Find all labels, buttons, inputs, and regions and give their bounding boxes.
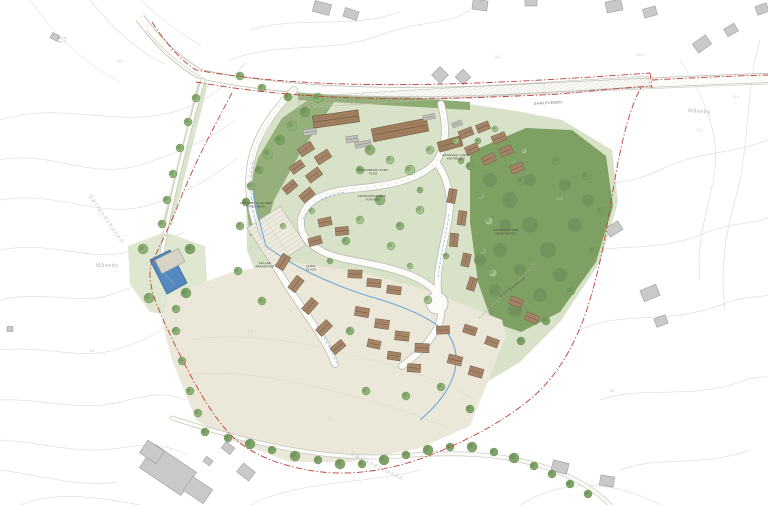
- tree-icon: [492, 126, 498, 132]
- annotation-label: LEIKE-PLASS: [306, 264, 316, 271]
- tree-icon: [446, 443, 454, 451]
- site-plan-page: MåsebyMåsebySørlandsbanenSørlandsbanenGA…: [0, 0, 768, 505]
- house: [415, 343, 429, 352]
- tree-icon: [475, 138, 481, 144]
- tree-icon: [186, 387, 194, 395]
- house: [407, 364, 421, 373]
- forest-canopy-blob: [502, 192, 518, 208]
- house: [348, 270, 362, 278]
- elevation-label: 11.7: [697, 128, 703, 132]
- tree-icon: [176, 144, 184, 152]
- house: [395, 331, 410, 341]
- tree-icon: [510, 158, 516, 164]
- tree-icon: [466, 162, 474, 170]
- existing-building: [525, 0, 537, 6]
- annotation-label: gnr. 57bnr. 1: [57, 36, 67, 43]
- forest-canopy-blob: [524, 174, 536, 186]
- tree-icon: [169, 170, 177, 178]
- tree-icon: [437, 383, 445, 391]
- tree-icon: [201, 428, 209, 436]
- tree-icon: [517, 177, 525, 185]
- house: [457, 211, 467, 226]
- tree-icon: [290, 451, 300, 461]
- forest-canopy-blob: [493, 243, 507, 257]
- house: [387, 351, 401, 361]
- tree-icon: [426, 146, 434, 154]
- elevation-label: 4.5: [118, 59, 123, 63]
- tree-icon: [184, 118, 192, 126]
- tree-icon: [163, 196, 171, 204]
- forest-canopy-blob: [582, 194, 594, 206]
- elevation-label: 10.2: [557, 197, 563, 201]
- tree-icon: [489, 269, 497, 277]
- tree-icon: [158, 220, 166, 228]
- tree-icon: [346, 327, 354, 335]
- tree-icon: [379, 455, 389, 465]
- tree-icon: [405, 165, 415, 175]
- tree-icon: [365, 145, 375, 155]
- tree-icon: [247, 182, 255, 190]
- tree-icon: [477, 192, 485, 200]
- tree-icon: [424, 296, 432, 304]
- tree-icon: [416, 206, 424, 214]
- house: [449, 233, 458, 247]
- forest-canopy-blob: [533, 288, 547, 302]
- tree-icon: [417, 187, 423, 193]
- tree-icon: [144, 293, 154, 303]
- forest-canopy-blob: [522, 217, 538, 233]
- tree-icon: [542, 317, 550, 325]
- house: [374, 319, 389, 330]
- tree-icon: [584, 490, 592, 498]
- tree-icon: [245, 439, 255, 449]
- tree-icon: [402, 451, 410, 459]
- tree-icon: [443, 253, 449, 259]
- elevation-label: 10.9: [637, 53, 643, 57]
- place-label: Måseby: [96, 262, 119, 269]
- existing-building: [7, 327, 13, 332]
- existing-building: [472, 0, 488, 11]
- tree-icon: [567, 287, 575, 295]
- tree-icon: [185, 244, 195, 254]
- forest-canopy-blob: [474, 254, 486, 266]
- tree-icon: [552, 157, 560, 165]
- tree-icon: [236, 222, 244, 230]
- forest-canopy-blob: [553, 268, 567, 282]
- tree-icon: [548, 470, 556, 478]
- house: [367, 278, 382, 287]
- tree-icon: [327, 258, 333, 264]
- elevation-label: 7.2: [328, 417, 333, 421]
- tree-icon: [192, 94, 200, 102]
- tree-icon: [172, 327, 180, 335]
- tree-icon: [402, 392, 410, 400]
- site-plan-map: MåsebyMåsebySørlandsbanenSørlandsbanenGA…: [0, 0, 768, 505]
- tree-icon: [275, 135, 285, 145]
- tree-icon: [485, 217, 493, 225]
- existing-building: [599, 475, 615, 487]
- tree-icon: [530, 462, 538, 470]
- elevation-label: 9.8: [610, 389, 615, 393]
- tree-icon: [517, 337, 525, 345]
- tree-icon: [490, 448, 498, 456]
- tree-icon: [582, 172, 590, 180]
- tree-icon: [234, 267, 242, 275]
- tree-icon: [407, 263, 413, 269]
- tree-icon: [386, 156, 394, 164]
- elevation-label: 11.2: [495, 55, 501, 59]
- tree-icon: [280, 223, 286, 229]
- tree-icon: [566, 480, 574, 488]
- tree-icon: [335, 459, 345, 469]
- tree-icon: [138, 244, 148, 254]
- forest-canopy-blob: [568, 218, 582, 232]
- tree-icon: [181, 288, 191, 298]
- tree-icon: [194, 409, 202, 417]
- tree-icon: [521, 148, 527, 154]
- tree-icon: [362, 387, 370, 395]
- tree-icon: [356, 216, 364, 224]
- forest-canopy-blob: [483, 173, 497, 187]
- tree-icon: [467, 442, 477, 452]
- house: [387, 285, 402, 295]
- tree-icon: [387, 242, 395, 250]
- tree-icon: [453, 138, 459, 144]
- house: [436, 326, 449, 334]
- tree-icon: [509, 453, 519, 463]
- tree-icon: [314, 456, 322, 464]
- tree-icon: [263, 149, 273, 159]
- tree-icon: [597, 207, 605, 215]
- tree-icon: [396, 222, 404, 230]
- tree-icon: [342, 237, 350, 245]
- tree-icon: [268, 446, 276, 454]
- tree-icon: [309, 208, 315, 214]
- tree-icon: [589, 247, 597, 255]
- tree-icon: [172, 305, 180, 313]
- house: [335, 226, 349, 235]
- tree-icon: [313, 93, 323, 103]
- tree-icon: [479, 247, 487, 255]
- forest-canopy-blob: [540, 242, 556, 258]
- tree-icon: [258, 297, 266, 305]
- elevation-label: 11.4: [733, 95, 739, 99]
- tree-icon: [287, 121, 297, 131]
- annotation-label: EKSISTERANDEVEGETASJON: [494, 228, 519, 235]
- forest-canopy-blob: [559, 179, 571, 191]
- forest-canopy-blob: [514, 264, 526, 276]
- tree-icon: [423, 445, 433, 455]
- tree-icon: [300, 107, 310, 117]
- tree-icon: [466, 405, 474, 413]
- tree-icon: [255, 166, 263, 174]
- elevation-label: 5.6: [90, 349, 95, 353]
- elevation-label: 6.1: [248, 329, 253, 333]
